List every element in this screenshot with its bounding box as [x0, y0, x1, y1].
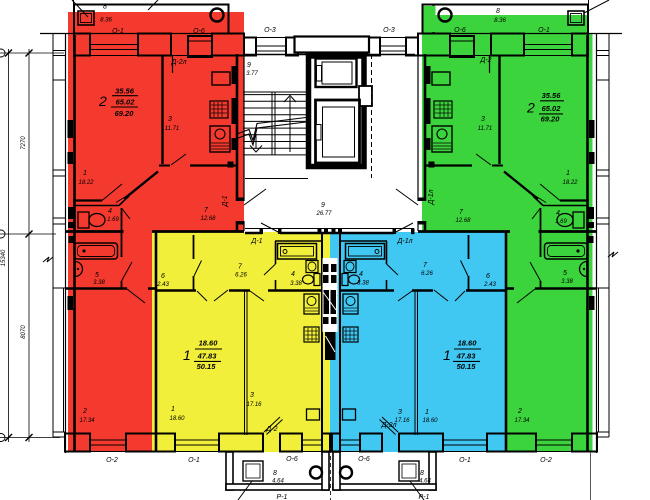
- svg-text:О-6: О-6: [358, 456, 370, 463]
- svg-text:3.77: 3.77: [246, 71, 258, 77]
- svg-text:47.83: 47.83: [197, 352, 218, 361]
- svg-text:8.36: 8.36: [494, 18, 506, 24]
- svg-text:3.38: 3.38: [357, 281, 369, 287]
- svg-text:69.20: 69.20: [115, 109, 135, 118]
- svg-text:1.69: 1.69: [107, 217, 119, 223]
- svg-text:65.02: 65.02: [116, 98, 136, 107]
- svg-text:4: 4: [556, 210, 560, 217]
- svg-text:4: 4: [291, 271, 295, 278]
- svg-text:12.68: 12.68: [455, 218, 471, 224]
- svg-text:3.38: 3.38: [93, 280, 105, 286]
- svg-text:6: 6: [486, 273, 490, 280]
- svg-text:3: 3: [398, 409, 402, 416]
- svg-text:18.60: 18.60: [199, 339, 219, 348]
- svg-text:О-2: О-2: [106, 457, 118, 464]
- svg-text:3.38: 3.38: [561, 279, 573, 285]
- svg-text:26.77: 26.77: [315, 211, 332, 217]
- svg-text:17.34: 17.34: [514, 418, 530, 424]
- svg-text:50.15: 50.15: [457, 362, 477, 371]
- svg-text:35.56: 35.56: [115, 87, 135, 96]
- svg-text:О-6: О-6: [286, 456, 298, 463]
- svg-text:Д-1л: Д-1л: [428, 189, 435, 205]
- svg-text:6.26: 6.26: [421, 271, 433, 277]
- svg-text:4.64: 4.64: [419, 479, 431, 485]
- svg-text:8: 8: [103, 4, 107, 11]
- svg-text:Д-2л: Д-2л: [380, 422, 396, 429]
- svg-text:3: 3: [168, 116, 172, 123]
- svg-text:О-1: О-1: [188, 457, 200, 464]
- svg-text:8: 8: [420, 470, 424, 477]
- svg-text:4.64: 4.64: [272, 479, 284, 485]
- svg-text:3: 3: [481, 116, 485, 123]
- svg-text:2: 2: [82, 408, 87, 415]
- svg-text:17.16: 17.16: [394, 418, 410, 424]
- svg-text:Д-2: Д-2: [265, 426, 277, 433]
- svg-text:Р-1: Р-1: [419, 494, 430, 500]
- svg-text:6.26: 6.26: [235, 273, 247, 279]
- svg-text:О-3: О-3: [264, 27, 276, 34]
- svg-text:7270: 7270: [21, 136, 27, 150]
- svg-text:Д-1: Д-1: [222, 195, 229, 207]
- svg-text:12.68: 12.68: [200, 216, 216, 222]
- svg-text:3: 3: [250, 392, 254, 399]
- svg-text:8.36: 8.36: [100, 18, 112, 24]
- svg-text:8: 8: [273, 470, 277, 477]
- svg-text:2.43: 2.43: [156, 282, 169, 288]
- svg-text:3.38: 3.38: [290, 281, 302, 287]
- svg-text:1: 1: [183, 347, 191, 363]
- svg-text:4: 4: [359, 271, 363, 278]
- svg-text:8070: 8070: [21, 325, 27, 339]
- svg-text:Д-2: Д-2: [479, 57, 491, 64]
- svg-text:О-6: О-6: [193, 28, 205, 35]
- svg-text:1: 1: [171, 406, 175, 413]
- svg-text:2: 2: [517, 408, 522, 415]
- svg-text:18.22: 18.22: [78, 180, 94, 186]
- svg-text:О-3: О-3: [383, 27, 395, 34]
- svg-text:4: 4: [108, 208, 112, 215]
- svg-text:11.71: 11.71: [165, 126, 180, 132]
- svg-text:35.56: 35.56: [542, 91, 562, 100]
- svg-text:5: 5: [95, 272, 99, 279]
- svg-text:1: 1: [83, 170, 87, 177]
- svg-text:2: 2: [98, 93, 107, 109]
- svg-text:5: 5: [563, 270, 567, 277]
- svg-text:1: 1: [425, 409, 429, 416]
- svg-text:О-2: О-2: [540, 457, 552, 464]
- svg-text:8: 8: [496, 8, 500, 15]
- svg-text:47.83: 47.83: [456, 352, 477, 361]
- svg-text:Д-1: Д-1: [250, 238, 262, 245]
- svg-text:6: 6: [161, 273, 165, 280]
- svg-text:О-1: О-1: [538, 27, 550, 34]
- svg-text:65.02: 65.02: [542, 104, 562, 113]
- svg-text:15340: 15340: [1, 249, 7, 266]
- svg-text:18.60: 18.60: [458, 339, 478, 348]
- svg-text:Д-1л: Д-1л: [396, 238, 412, 245]
- svg-text:2: 2: [526, 100, 535, 116]
- svg-text:17.34: 17.34: [79, 418, 95, 424]
- svg-text:18.60: 18.60: [169, 416, 185, 422]
- svg-text:50.15: 50.15: [197, 362, 217, 371]
- svg-text:69.20: 69.20: [541, 115, 561, 124]
- svg-text:18.60: 18.60: [422, 418, 438, 424]
- svg-text:О-6: О-6: [454, 27, 466, 34]
- svg-text:1.69: 1.69: [555, 219, 567, 225]
- svg-text:1: 1: [566, 170, 570, 177]
- svg-text:11.71: 11.71: [478, 126, 493, 132]
- svg-text:2.43: 2.43: [483, 282, 496, 288]
- svg-text:9: 9: [321, 202, 325, 209]
- svg-text:Р-1: Р-1: [277, 494, 288, 500]
- svg-text:18.22: 18.22: [562, 180, 578, 186]
- svg-text:Д-2л: Д-2л: [170, 59, 186, 66]
- svg-text:9: 9: [247, 62, 251, 69]
- svg-text:О-1: О-1: [112, 28, 124, 35]
- svg-text:17.16: 17.16: [246, 402, 262, 408]
- svg-text:1: 1: [443, 347, 451, 363]
- svg-text:О-1: О-1: [459, 457, 471, 464]
